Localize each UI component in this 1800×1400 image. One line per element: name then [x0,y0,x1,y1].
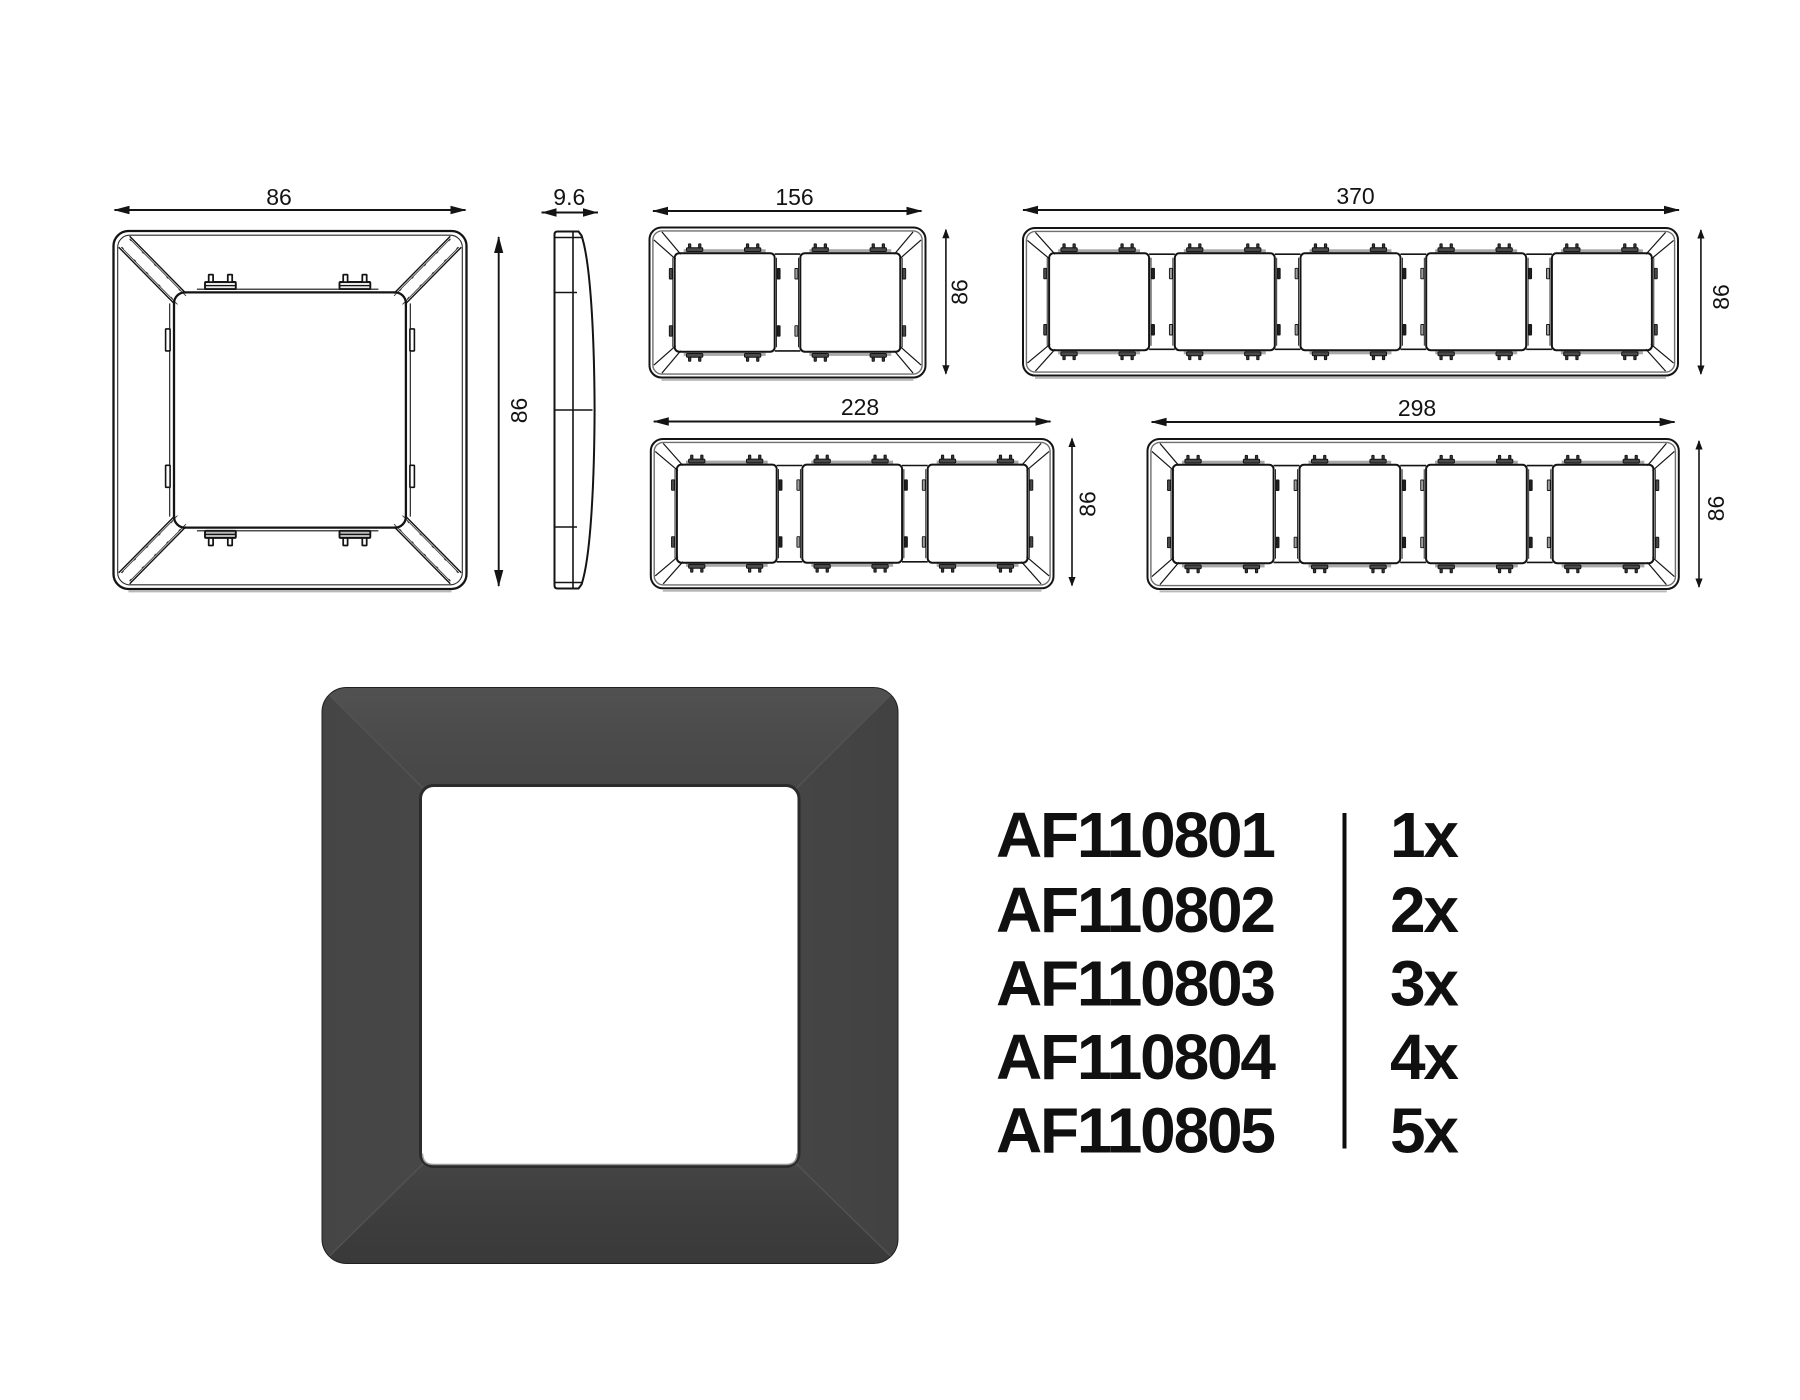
svg-text:156: 156 [775,184,813,210]
svg-text:AF110804: AF110804 [996,1021,1276,1093]
svg-text:370: 370 [1336,183,1374,209]
svg-text:86: 86 [1708,284,1734,310]
svg-text:86: 86 [1703,496,1729,522]
svg-text:AF110802: AF110802 [996,874,1274,946]
svg-text:AF110805: AF110805 [996,1095,1274,1167]
svg-text:3x: 3x [1390,948,1459,1020]
svg-text:228: 228 [841,394,879,420]
svg-text:86: 86 [947,279,973,305]
svg-text:AF110801: AF110801 [996,799,1274,871]
svg-text:2x: 2x [1390,874,1459,946]
svg-text:9.6: 9.6 [553,184,585,210]
svg-text:86: 86 [1075,491,1101,517]
svg-text:298: 298 [1398,395,1436,421]
svg-text:1x: 1x [1390,799,1459,871]
svg-text:86: 86 [266,184,292,210]
svg-text:86: 86 [506,398,532,424]
svg-text:5x: 5x [1390,1095,1459,1167]
svg-text:AF110803: AF110803 [996,948,1274,1020]
svg-text:4x: 4x [1390,1021,1459,1093]
